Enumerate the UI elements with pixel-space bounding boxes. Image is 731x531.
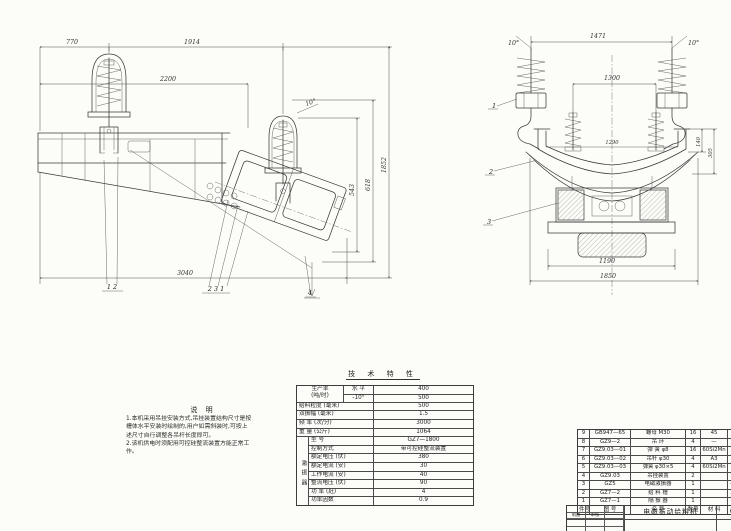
dim-1852: 1852 bbox=[381, 157, 388, 173]
part-code: GZ9.03 bbox=[589, 473, 630, 481]
note-line: 2.该机供电时须配用可控硅整流装置方能正常工 bbox=[126, 440, 284, 448]
exciter-value: 380 bbox=[373, 454, 473, 462]
revision-cell bbox=[586, 527, 605, 531]
exciter-front bbox=[548, 176, 675, 257]
suspension-left bbox=[516, 36, 546, 149]
part-material: — bbox=[700, 439, 727, 447]
part-name: 吊 环 bbox=[630, 439, 685, 447]
part-material bbox=[700, 473, 727, 481]
product-name-spacer bbox=[625, 520, 717, 531]
part-qty: 1 bbox=[685, 481, 700, 489]
part-unit-weight: 0.5 bbox=[727, 447, 731, 455]
exciter-value: GZ7—1800 bbox=[373, 437, 473, 445]
spec-value: 1.5 bbox=[373, 411, 473, 419]
spec-row-capacity: 生产率 (吨/时) 水 平 400 -10° 500 bbox=[297, 386, 473, 402]
exciter-label: 额定电压 (伏) bbox=[309, 454, 373, 462]
part-material: 45 bbox=[700, 430, 727, 438]
part-name: 吊杆 φ30 bbox=[630, 456, 685, 464]
part-name: 螺母 M30 bbox=[630, 430, 685, 438]
part-qty: 4 bbox=[685, 456, 700, 464]
note-line: 述尺寸自行调整各吊杆长度即可。 bbox=[126, 432, 284, 440]
part-callout-1: 1 bbox=[492, 102, 496, 110]
suspension-right bbox=[657, 36, 687, 149]
note-line: 作。 bbox=[126, 448, 284, 456]
exciter-label: 功率因数 bbox=[309, 497, 373, 505]
sign-cell: 审核 bbox=[586, 513, 605, 520]
dim-1300: 1300 bbox=[604, 75, 620, 82]
capacity-label: 生产率 (吨/时) bbox=[297, 386, 343, 402]
part-unit-weight: 2.4 bbox=[727, 456, 731, 464]
exciter-label: 额定电流 (安) bbox=[309, 463, 373, 471]
part-material bbox=[700, 490, 727, 498]
angle-right-label: 10° bbox=[688, 40, 699, 47]
notes-title: 说 明 bbox=[127, 405, 279, 415]
spec-label: 频 率 (次/分) bbox=[297, 420, 373, 428]
spec-value: 1064 bbox=[373, 429, 473, 437]
part-callout-2: 2 bbox=[488, 168, 493, 176]
capacity-sub-label: -10° bbox=[343, 395, 373, 403]
inner-spring-left bbox=[565, 112, 581, 151]
empty-cell bbox=[717, 520, 731, 531]
part-callout-3: 3 bbox=[487, 218, 491, 226]
spec-table-title-text: 技 术 特 性 bbox=[346, 370, 420, 380]
part-unit-weight: 399 bbox=[727, 490, 731, 498]
spec-value: 3000 bbox=[373, 420, 473, 428]
part-unit-weight bbox=[727, 439, 731, 447]
exciter-group: 激振器 型 号 GZ7—1800 控制方式 带可控硅整流装置 额定电压 (伏) … bbox=[297, 436, 473, 505]
revision-grid: 制图 审核 bbox=[567, 506, 625, 519]
part-unit-weight: 1.5 bbox=[727, 464, 731, 472]
exciter-value: 40 bbox=[373, 472, 473, 480]
part-unit-weight bbox=[727, 430, 731, 438]
revision-cell bbox=[605, 513, 624, 520]
exciter-value: 4 bbox=[373, 489, 473, 497]
dim-1850: 1850 bbox=[600, 273, 616, 280]
angle-left-label: 10° bbox=[508, 40, 519, 47]
dim-305: 305 bbox=[708, 148, 714, 158]
part-name: 给 料 槽 bbox=[630, 490, 685, 498]
part-no: 6 bbox=[578, 456, 589, 464]
revision-cell bbox=[605, 527, 624, 531]
capacity-sub-rows: 水 平 400 -10° 500 bbox=[343, 386, 473, 402]
part-code: GZ9—2 bbox=[589, 439, 630, 447]
exciter-rows: 型 号 GZ7—1800 控制方式 带可控硅整流装置 额定电压 (伏) 380 … bbox=[309, 437, 473, 505]
exciter-value: 带可控硅整流装置 bbox=[373, 446, 473, 454]
part-code: GZ7—2 bbox=[589, 490, 630, 498]
part-no: 4 bbox=[578, 473, 589, 481]
dim-1471: 1471 bbox=[590, 33, 606, 40]
parts-table: 9 GB947—65 螺母 M30 16 45 8 GZ9—2 吊 环 4 — bbox=[577, 429, 731, 515]
part-no: 2 bbox=[578, 490, 589, 498]
part-qty: 2 bbox=[685, 473, 700, 481]
exciter-label: 控制方式 bbox=[309, 446, 373, 454]
part-material: A3 bbox=[700, 456, 727, 464]
spring-hanger-1 bbox=[88, 54, 130, 153]
part-unit-weight: 475 bbox=[727, 481, 731, 489]
dim-1290: 1290 bbox=[605, 140, 619, 146]
product-name: 电磁振动给料机 bbox=[625, 506, 717, 519]
callout-2-3-1: 2 3 1 bbox=[207, 285, 225, 293]
parts-rows: 9 GB947—65 螺母 M30 16 45 8 GZ9—2 吊 环 4 — bbox=[578, 430, 731, 506]
part-name: 吊挂装置 bbox=[630, 473, 685, 481]
dim-3040: 3040 bbox=[177, 270, 193, 277]
exciter-value: 90 bbox=[373, 480, 473, 488]
title-block-right-2 bbox=[717, 520, 731, 531]
capacity-sub-value: 500 bbox=[373, 395, 473, 403]
sign-cell: 制图 bbox=[567, 513, 586, 520]
exciter-head bbox=[207, 150, 352, 298]
exciter-value: 30 bbox=[373, 463, 473, 471]
title-block-row-1: 制图 审核 电磁振动给料机 GZ7 型 bbox=[567, 506, 731, 520]
part-code: GZ9.03—03 bbox=[589, 464, 630, 472]
clevis-fork-1 bbox=[100, 127, 118, 153]
part-name: 弹 簧 φ8 bbox=[630, 447, 685, 455]
part-qty: 1 bbox=[685, 490, 700, 498]
revision-grid-2 bbox=[567, 520, 625, 531]
spec-label: 重 量 (公斤) bbox=[297, 429, 373, 437]
part-code: GZ9.03—02 bbox=[589, 456, 630, 464]
part-material: 60Si2Mn bbox=[700, 464, 727, 472]
note-line: 1.本机采用吊挂安装方式,吊挂装置结构尺寸是按 bbox=[126, 415, 284, 423]
exciter-label: 整流电压 (伏) bbox=[309, 480, 373, 488]
clevis-fork-2 bbox=[276, 183, 290, 203]
part-no: 9 bbox=[578, 430, 589, 438]
part-code: GZ9.03—01 bbox=[589, 447, 630, 455]
part-unit-weight bbox=[727, 473, 731, 481]
part-no: 5 bbox=[578, 464, 589, 472]
notes-lines: 1.本机采用吊挂安装方式,吊挂装置结构尺寸是按槽体水平安装时绘制的,用户如需斜装… bbox=[126, 415, 284, 456]
part-qty: 16 bbox=[685, 447, 700, 455]
dim-1190: 1190 bbox=[599, 258, 615, 265]
left-view: 770 1914 2200 3040 543 618 1852 10° 1 2 … bbox=[38, 39, 392, 298]
drawing-sheet: 770 1914 2200 3040 543 618 1852 10° 1 2 … bbox=[0, 0, 731, 531]
left-view-dimensions bbox=[40, 43, 392, 297]
dim-140: 140 bbox=[696, 136, 702, 147]
part-qty: 4 bbox=[685, 439, 700, 447]
right-view: 1471 10° 10° 1300 1290 140 305 1190 1850… bbox=[483, 33, 717, 295]
part-qty: 4 bbox=[685, 464, 700, 472]
spec-label: 双振幅 (毫米) bbox=[297, 411, 373, 419]
exciter-label: 型 号 bbox=[309, 437, 373, 445]
dim-618: 618 bbox=[365, 179, 372, 191]
part-code: GB947—65 bbox=[589, 430, 630, 438]
revision-cell bbox=[567, 527, 586, 531]
part-qty: 16 bbox=[685, 430, 700, 438]
title-block-right: GZ7 型 bbox=[717, 506, 731, 519]
exciter-group-label: 激振器 bbox=[297, 437, 309, 505]
dim-2200: 2200 bbox=[159, 76, 176, 83]
capacity-sub-label: 水 平 bbox=[343, 386, 373, 394]
inner-spring-right bbox=[648, 112, 664, 151]
spec-table: 生产率 (吨/时) 水 平 400 -10° 500 给料粒度 (毫米) 500 bbox=[296, 385, 474, 506]
part-no: 8 bbox=[578, 439, 589, 447]
part-code: GZ5 bbox=[589, 481, 630, 489]
exciter-label: 功 率 (瓩) bbox=[309, 489, 373, 497]
dim-770: 770 bbox=[66, 39, 78, 46]
spec-simple-rows: 给料粒度 (毫米) 500 双振幅 (毫米) 1.5 频 率 (次/分) 300… bbox=[297, 402, 473, 436]
capacity-sub-value: 400 bbox=[373, 386, 473, 394]
trough-side bbox=[38, 133, 312, 268]
title-block: 制图 审核 电磁振动给料机 GZ7 型 bbox=[566, 505, 731, 531]
part-name: 弹簧 φ30×5 bbox=[630, 464, 685, 472]
callout-4: 4 bbox=[307, 289, 312, 297]
part-no: 3 bbox=[578, 481, 589, 489]
angle-label: 10° bbox=[304, 98, 317, 108]
exciter-label: 工作电流 (安) bbox=[309, 472, 373, 480]
part-material: 60Si2Mn bbox=[700, 447, 727, 455]
spec-table-title: 技 术 特 性 bbox=[296, 369, 470, 379]
spec-label: 给料粒度 (毫米) bbox=[297, 403, 373, 411]
exciter-value: 0.9 bbox=[373, 497, 473, 505]
spec-value: 500 bbox=[373, 403, 473, 411]
dim-1914: 1914 bbox=[184, 39, 200, 46]
part-name: 电磁激振器 bbox=[630, 481, 685, 489]
part-no: 7 bbox=[578, 447, 589, 455]
part-material bbox=[700, 481, 727, 489]
dim-543: 543 bbox=[349, 184, 356, 196]
callout-1-2: 1 2 bbox=[107, 283, 117, 291]
title-block-row-2 bbox=[567, 520, 731, 531]
model-cell: GZ7 型 bbox=[717, 506, 731, 519]
note-line: 槽体水平安装时绘制的,用户如需斜装时,可按上 bbox=[126, 423, 284, 431]
